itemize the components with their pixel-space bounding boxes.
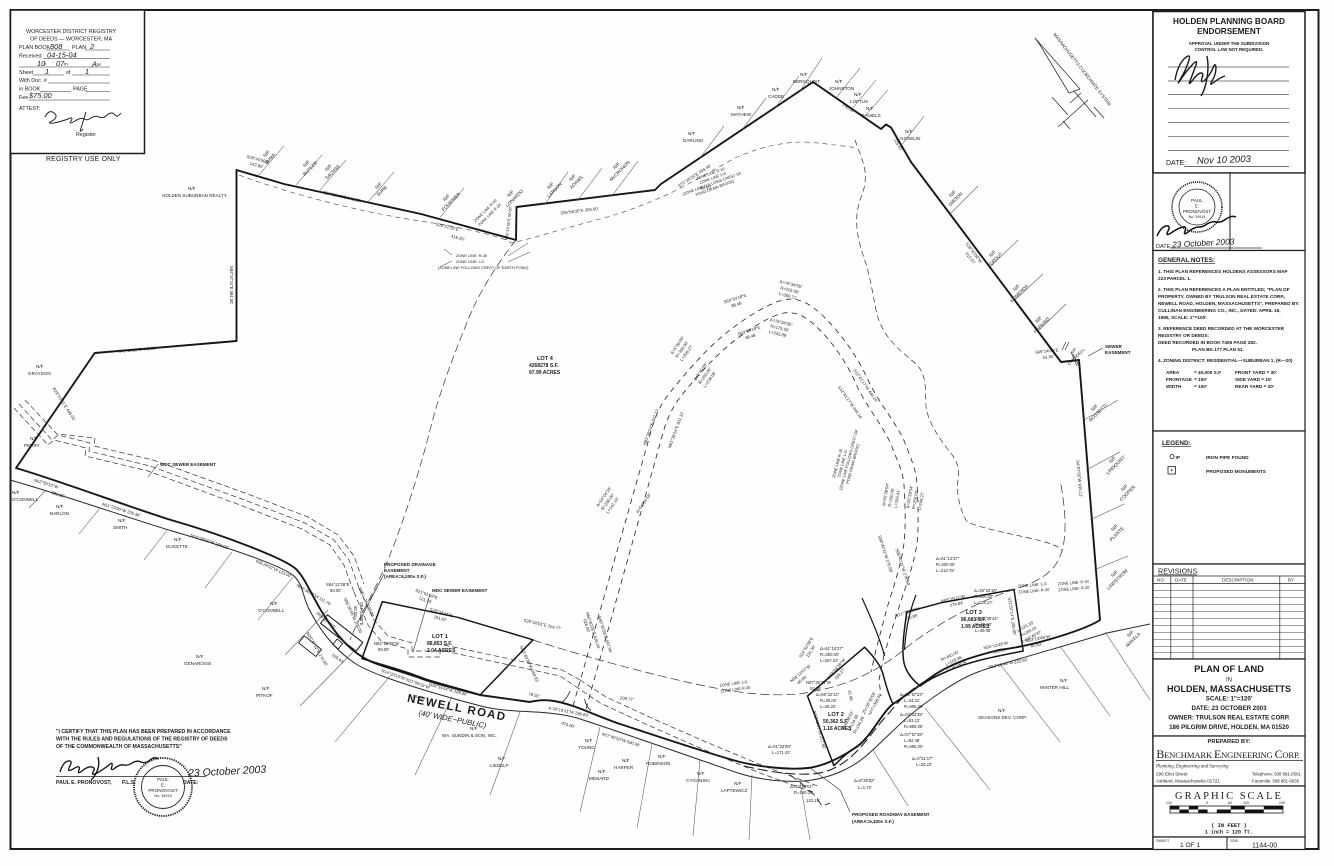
svg-text:Ashland, Massachusetts 01721: Ashland, Massachusetts 01721: [1156, 779, 1220, 784]
svg-text:(AREA=6,200± S.F.): (AREA=6,200± S.F.): [384, 574, 426, 579]
svg-text:E.: E.: [1195, 204, 1199, 209]
svg-text:IRON PIPE FOUND: IRON PIPE FOUND: [1206, 455, 1249, 461]
svg-text:R=665.06': R=665.06': [904, 724, 923, 729]
svg-text:PLAN BK.177 PLAN 51.: PLAN BK.177 PLAN 51.: [1192, 347, 1244, 352]
svg-text:SEWER: SEWER: [1105, 344, 1123, 349]
svg-text:186 PILGRIM DRIVE, HOLDEN,: 186 PILGRIM DRIVE, HOLDEN, MA 01520: [1169, 724, 1289, 731]
svg-text:L=53.13': L=53.13': [904, 718, 920, 723]
svg-text:N/F: N/F: [835, 79, 843, 84]
svg-text:N/F: N/F: [800, 72, 808, 77]
svg-text:88,853 S.F.: 88,853 S.F.: [427, 641, 453, 647]
svg-text:N07°25'34"W: N07°25'34"W: [806, 680, 831, 685]
svg-text:GRAYSON: GRAYSON: [28, 371, 51, 376]
svg-text:0: 0: [1206, 801, 1208, 805]
svg-text:Δ=61°14'37": Δ=61°14'37": [936, 556, 960, 561]
svg-text:SCALE: 1"=120': SCALE: 1"=120': [1206, 696, 1253, 703]
svg-text:N/F: N/F: [498, 756, 506, 761]
svg-text:DANIELS: DANIELS: [861, 113, 881, 118]
svg-text:of: of: [66, 70, 71, 76]
svg-text:L=20.23': L=20.23': [916, 762, 932, 767]
svg-text:WORCESTER DISTRICT REGISTRY: WORCESTER DISTRICT REGISTRY: [26, 29, 117, 35]
svg-text:223 PARCEL 1.: 223 PARCEL 1.: [1158, 276, 1191, 281]
svg-text:R=665.00': R=665.00': [904, 704, 923, 709]
svg-text:BERGQUIST: BERGQUIST: [793, 79, 820, 84]
svg-text:No. 34919: No. 34919: [154, 794, 172, 798]
svg-text:With Doc. #: With Doc. #: [19, 78, 47, 84]
svg-text:HOLDEN PLANNING BOARD: HOLDEN PLANNING BOARD: [1173, 17, 1285, 26]
svg-text:N/F: N/F: [196, 654, 204, 659]
svg-text:LEGEND:: LEGEND:: [1162, 440, 1191, 447]
svg-text:HOLDEN, MASSACHUSETTS: HOLDEN, MASSACHUSETTS: [1167, 684, 1291, 694]
svg-text:N/F: N/F: [737, 105, 745, 110]
svg-text:OWNER: TRULSON REAL ESTATE: OWNER: TRULSON REAL ESTATE CORP.: [1168, 715, 1290, 722]
svg-text:PRONOVOST: PRONOVOST: [1183, 209, 1211, 214]
svg-text:ENDORSEMENT: ENDORSEMENT: [1197, 27, 1261, 36]
svg-text:O'CONNELL: O'CONNELL: [12, 497, 39, 502]
svg-text:Δ=8°36'52": Δ=8°36'52": [854, 778, 875, 783]
svg-text:IP: IP: [1176, 455, 1181, 461]
svg-text:FRONT YARD = 30': FRONT YARD = 30': [1235, 370, 1277, 375]
svg-text:HARPER: HARPER: [614, 765, 634, 770]
svg-text:Δ=07°57'38": Δ=07°57'38": [900, 732, 924, 737]
svg-text:EASEMENT: EASEMENT: [1105, 350, 1131, 355]
svg-text:( IN FEET ): ( IN FEET ): [1211, 823, 1247, 829]
svg-text:LOT 4: LOT 4: [537, 356, 554, 362]
svg-text:BARLON: BARLON: [50, 511, 69, 516]
svg-text:L=213.78': L=213.78': [936, 568, 955, 573]
svg-text:WA. SUNDIN & SON, INC.: WA. SUNDIN & SON, INC.: [442, 733, 497, 738]
svg-text:2.04 ACRES: 2.04 ACRES: [427, 648, 456, 654]
svg-text:IN: IN: [1226, 678, 1232, 684]
svg-text:Nov 10 2003: Nov 10 2003: [1197, 154, 1252, 167]
svg-text:Δ=86°05'44": Δ=86°05'44": [975, 616, 999, 621]
svg-text:SIDE YARD = 15': SIDE YARD = 15': [1235, 377, 1272, 382]
svg-text:N/F: N/F: [12, 490, 20, 495]
svg-text:REVISIONS: REVISIONS: [1158, 567, 1197, 576]
svg-text:= 40,000 S.F: = 40,000 S.F: [1194, 370, 1221, 375]
svg-text:PAUL E. PRONOVOST,: PAUL E. PRONOVOST,: [56, 780, 112, 786]
svg-text:L=1.72': L=1.72': [858, 785, 872, 790]
svg-text:R=685.00': R=685.00': [904, 744, 923, 749]
svg-text:Sheet: Sheet: [19, 70, 34, 76]
svg-text:N/F: N/F: [174, 537, 182, 542]
svg-text:CADDE: CADDE: [768, 94, 784, 99]
svg-text:L=267.23': L=267.23': [820, 658, 839, 663]
svg-text:123.14': 123.14': [806, 798, 820, 803]
svg-text:R=200.00': R=200.00': [936, 562, 955, 567]
svg-text:REAR YARD = 20': REAR YARD = 20': [1235, 384, 1274, 389]
svg-text:S84°12'28"E: S84°12'28"E: [326, 582, 350, 587]
svg-text:JOB: JOB: [1230, 838, 1238, 843]
svg-text:$75.00: $75.00: [28, 91, 52, 100]
svg-text:JOHNSTON: JOHNSTON: [829, 86, 854, 91]
svg-text:N/F: N/F: [905, 129, 913, 134]
svg-text:PRONOVOST: PRONOVOST: [148, 788, 178, 793]
svg-text:WIDTH: WIDTH: [1166, 384, 1182, 389]
svg-text:ROBINSON: ROBINSON: [646, 761, 671, 766]
svg-text:N/F: N/F: [30, 436, 38, 441]
svg-text:L=171.42': L=171.42': [772, 750, 791, 755]
svg-text:Δ=02°57'23": Δ=02°57'23": [900, 692, 924, 697]
svg-text:2: 2: [89, 42, 94, 51]
svg-text:N/F: N/F: [622, 758, 630, 763]
svg-text:LOFTUS: LOFTUS: [850, 99, 868, 104]
svg-text:Telephone: 508 881-0501: Telephone: 508 881-0501: [1252, 772, 1301, 777]
svg-text:Planning, Engineering and Surv: Planning, Engineering and Surveying: [1155, 765, 1229, 770]
svg-text:SEASONS DEV. CORP.: SEASONS DEV. CORP.: [978, 715, 1027, 720]
svg-text:L=45.08': L=45.08': [975, 628, 991, 633]
svg-text:BENCHMARK ENGINEERING CORP.: BENCHMARK ENGINEERING CORP.: [1156, 747, 1299, 761]
svg-text:N/F: N/F: [56, 504, 64, 509]
svg-text:1144-00: 1144-00: [1252, 843, 1277, 850]
svg-text:LOT 1: LOT 1: [432, 634, 448, 640]
svg-text:N/F: N/F: [470, 726, 478, 731]
svg-text:59.00': 59.00': [378, 647, 389, 652]
svg-text:Δ=61°14'37": Δ=61°14'37": [820, 646, 844, 651]
svg-text:3. REFERENCE DEED RECORDED AT: 3. REFERENCE DEED RECORDED AT THE WORCES…: [1158, 326, 1285, 331]
svg-text:DARLING: DARLING: [683, 138, 704, 143]
svg-text:WITH THE RULES AND REGULATIONS: WITH THE RULES AND REGULATIONS OF THE RE…: [56, 737, 228, 743]
svg-text:L=45.22': L=45.22': [820, 704, 836, 709]
svg-text:M: M: [97, 62, 101, 67]
svg-text:N84°12'28"W: N84°12'28"W: [374, 641, 399, 646]
svg-text:L=124.17': L=124.17': [974, 600, 993, 605]
svg-text:60: 60: [1228, 801, 1232, 805]
svg-text:Facsimile: 508 881-0635: Facsimile: 508 881-0635: [1252, 779, 1300, 784]
svg-text:N84°57'11"E 584.50': N84°57'11"E 584.50': [229, 266, 234, 304]
svg-text:DATE:: DATE:: [1166, 160, 1186, 167]
svg-text:FRONTAGE: FRONTAGE: [1166, 377, 1192, 382]
svg-text:120: 120: [1166, 801, 1172, 805]
svg-text:LAPTEWICZ: LAPTEWICZ: [721, 788, 747, 793]
svg-text:N/F: N/F: [36, 364, 44, 369]
svg-text:WDC SEWER EASEMENT: WDC SEWER EASEMENT: [160, 462, 216, 467]
svg-text:4268278 S.F.: 4268278 S.F.: [529, 363, 559, 369]
svg-text:Δ=0°51'17": Δ=0°51'17": [912, 756, 933, 761]
svg-text:O'CONNELL: O'CONNELL: [258, 608, 285, 613]
svg-text:DUGETTE: DUGETTE: [166, 544, 188, 549]
svg-text:OF THE COMMONWEALTH OF MASSACH: OF THE COMMONWEALTH OF MASSACHUSETTS": [56, 744, 182, 750]
svg-text:R=180.00': R=180.00': [794, 790, 813, 795]
svg-text:PREPARED BY:: PREPARED BY:: [1208, 739, 1251, 745]
svg-text:YOUNG: YOUNG: [578, 745, 595, 750]
svg-text:SHEET: SHEET: [1156, 838, 1170, 843]
svg-text:NEWELL ROAD, HOLDEN, MASSACHUS: NEWELL ROAD, HOLDEN, MASSACHUSETTS", PRE…: [1158, 301, 1300, 306]
svg-text:GOSELIN: GOSELIN: [900, 136, 920, 141]
svg-text:= 100': = 100': [1194, 384, 1207, 389]
svg-text:DESCRIPTION: DESCRIPTION: [1222, 578, 1253, 583]
svg-text:Fee: Fee: [19, 95, 28, 101]
svg-text:N/F: N/F: [1060, 678, 1068, 683]
svg-text:DATE:: DATE:: [1156, 244, 1172, 250]
svg-text:DATE: 23 OCTOBER 2003: DATE: 23 OCTOBER 2003: [1191, 705, 1267, 712]
svg-text:N/F: N/F: [658, 754, 666, 759]
svg-text:BY: BY: [1288, 578, 1294, 583]
svg-text:N/F: N/F: [998, 708, 1006, 713]
svg-text:N/F: N/F: [262, 686, 270, 691]
svg-text:296 Eliot Street: 296 Eliot Street: [1156, 772, 1188, 777]
svg-text:N/F: N/F: [854, 92, 862, 97]
svg-text:CYGANSKI: CYGANSKI: [686, 778, 710, 783]
svg-text:N/F: N/F: [688, 131, 696, 136]
svg-text:1. THIS PLAN REFERENCES HOLDE: 1. THIS PLAN REFERENCES HOLDENS ASSESSOR…: [1158, 269, 1288, 274]
svg-text:m: m: [64, 62, 68, 67]
svg-text:50.00': 50.00': [330, 588, 341, 593]
svg-text:R=200.00': R=200.00': [974, 594, 993, 599]
svg-text:R=30.00': R=30.00': [975, 622, 992, 627]
svg-text:PLAN OF LAND: PLAN OF LAND: [1194, 663, 1264, 674]
svg-text:(AREA=6,400± S.F.): (AREA=6,400± S.F.): [852, 819, 894, 824]
svg-text:WINTER HILL: WINTER HILL: [1040, 685, 1070, 690]
svg-text:LOT 2: LOT 2: [828, 712, 844, 718]
svg-text:APPROVAL UNDER THE SUBDIVISION: APPROVAL UNDER THE SUBDIVISION: [1189, 41, 1270, 46]
svg-text:E.: E.: [161, 783, 165, 788]
svg-text:R=30.00': R=30.00': [820, 698, 837, 703]
svg-text:NO.: NO.: [1157, 578, 1165, 583]
svg-text:1: 1: [45, 67, 49, 76]
svg-text:120: 120: [1243, 801, 1249, 805]
svg-text:Δ=04°34'38": Δ=04°34'38": [900, 712, 924, 717]
svg-text:= 100': = 100': [1194, 377, 1207, 382]
svg-text:N/F: N/F: [734, 781, 742, 786]
svg-text:N/F: N/F: [772, 87, 780, 92]
svg-text:N/F: N/F: [188, 186, 196, 191]
svg-text:PROPOSED MONUMENTS: PROPOSED MONUMENTS: [1206, 469, 1267, 475]
svg-text:52.06': 52.06': [810, 686, 821, 691]
svg-text:Δ=61°23'08": Δ=61°23'08": [768, 744, 792, 749]
svg-text:1 inch = 120 ft.: 1 inch = 120 ft.: [1205, 830, 1253, 836]
svg-text:CONTROL LAW NOT REQUIRED.: CONTROL LAW NOT REQUIRED.: [1195, 47, 1264, 52]
svg-text:PAGE: PAGE: [73, 87, 88, 93]
svg-text:N/F: N/F: [598, 769, 606, 774]
svg-text:SMITH: SMITH: [113, 525, 127, 530]
svg-text:(ZONE LINE FOLLOWS CREST OF EA: (ZONE LINE FOLLOWS CREST OF EARTH POND): [438, 265, 529, 270]
svg-text:PLAN BOOK: PLAN BOOK: [19, 45, 51, 51]
svg-text:GENERAL NOTES:: GENERAL NOTES:: [1158, 257, 1215, 264]
svg-text:ZONE LINE: I-G: ZONE LINE: I-G: [456, 259, 484, 264]
svg-text:L=92.46': L=92.46': [904, 738, 920, 743]
svg-text:DEED RECORDED IN BOOK 7455 PAG: DEED RECORDED IN BOOK 7455 PAGE 282.: [1158, 340, 1257, 345]
svg-text:N/F: N/F: [866, 106, 874, 111]
svg-text:PAUL: PAUL: [157, 777, 169, 782]
svg-text:REGISTRY OR DEEDS:: REGISTRY OR DEEDS:: [1158, 333, 1209, 338]
svg-text:LIEDELF: LIEDELF: [490, 763, 509, 768]
svg-text:PROPOSED DRAINAGE: PROPOSED DRAINAGE: [384, 562, 436, 567]
svg-text:REGISTRY USE ONLY: REGISTRY USE ONLY: [46, 156, 121, 163]
svg-text:GENAROSSI: GENAROSSI: [184, 661, 211, 666]
svg-text:PERRY: PERRY: [24, 443, 40, 448]
svg-text:Register: Register: [76, 132, 96, 138]
svg-text:DATE: DATE: [1175, 578, 1187, 583]
svg-text:ATTEST:: ATTEST:: [19, 106, 40, 112]
svg-text:No. 34919: No. 34919: [1189, 215, 1206, 219]
svg-text:4. ZONING DISTRICT: RESIDENTIA: 4. ZONING DISTRICT: RESIDENTIAL—SUBURBAN…: [1158, 358, 1293, 363]
svg-text:L=34.31': L=34.31': [904, 698, 920, 703]
svg-text:N/F: N/F: [697, 771, 705, 776]
svg-text:N/F: N/F: [270, 601, 278, 606]
svg-text:97.99 ACRES: 97.99 ACRES: [529, 370, 561, 376]
svg-text:N/F: N/F: [118, 518, 126, 523]
svg-text:1: 1: [85, 67, 89, 76]
svg-text:PAUL: PAUL: [1191, 198, 1203, 203]
svg-text:MDC SEWER EASEMENT: MDC SEWER EASEMENT: [432, 588, 488, 593]
svg-text:PROPOSED ROADWAY EASEMENT: PROPOSED ROADWAY EASEMENT: [852, 812, 930, 817]
svg-text:PITKOF: PITKOF: [256, 693, 273, 698]
svg-text:AREA: AREA: [1166, 370, 1180, 375]
svg-text:1 OF 1: 1 OF 1: [1180, 842, 1200, 849]
svg-text:240: 240: [1279, 801, 1285, 805]
svg-text:PROPERTY, OWNED BY TRULSON REA: PROPERTY, OWNED BY TRULSON REAL ESTATE C…: [1158, 294, 1285, 299]
svg-text:EASEMENT: EASEMENT: [384, 568, 410, 573]
svg-text:OF DEEDS — WORCESTER, MA: OF DEEDS — WORCESTER, MA: [30, 37, 112, 43]
svg-text:MATHEW: MATHEW: [731, 112, 752, 117]
svg-text:R=250.00': R=250.00': [820, 652, 839, 657]
svg-text:MENARD: MENARD: [589, 776, 610, 781]
svg-text:"I CERTIFY THAT THIS PLAN HAS: "I CERTIFY THAT THIS PLAN HAS BEEN PREPA…: [56, 729, 231, 735]
svg-text:CULLINAN ENGINEERING CO., INC.: CULLINAN ENGINEERING CO., INC., DATED: A…: [1158, 308, 1281, 313]
svg-text:HOLDEN SUBURBAN REALTY: HOLDEN SUBURBAN REALTY: [162, 193, 227, 198]
svg-text:Δ=86°22'14": Δ=86°22'14": [816, 692, 840, 697]
svg-text:2. THIS PLAN REFERENCES A PLAN: 2. THIS PLAN REFERENCES A PLAN ENTITLED;…: [1158, 287, 1290, 292]
svg-text:ZONE LINE: R-30: ZONE LINE: R-30: [456, 253, 488, 258]
svg-text:Δ=35°34'16": Δ=35°34'16": [974, 588, 998, 593]
svg-text:Δ=62°90'01": Δ=62°90'01": [790, 784, 814, 789]
svg-text:1985, SCALE: 1"=100'.: 1985, SCALE: 1"=100'.: [1158, 315, 1208, 320]
svg-text:N/F: N/F: [585, 738, 593, 743]
